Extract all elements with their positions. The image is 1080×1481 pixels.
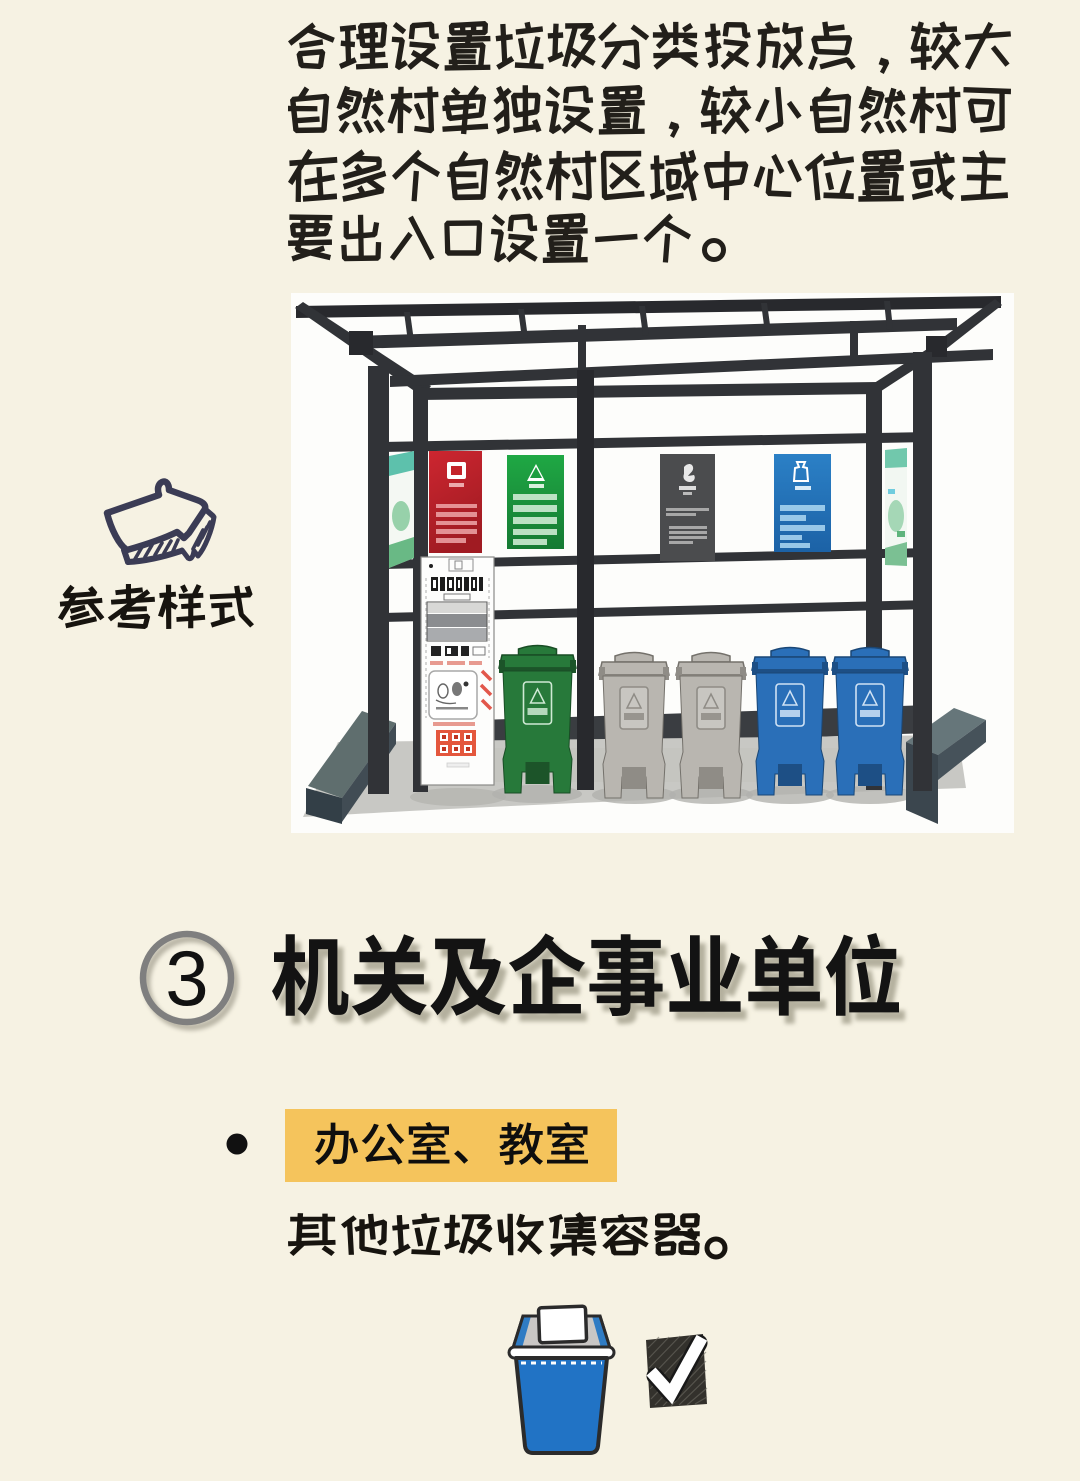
- svg-text:3: 3: [165, 934, 208, 1022]
